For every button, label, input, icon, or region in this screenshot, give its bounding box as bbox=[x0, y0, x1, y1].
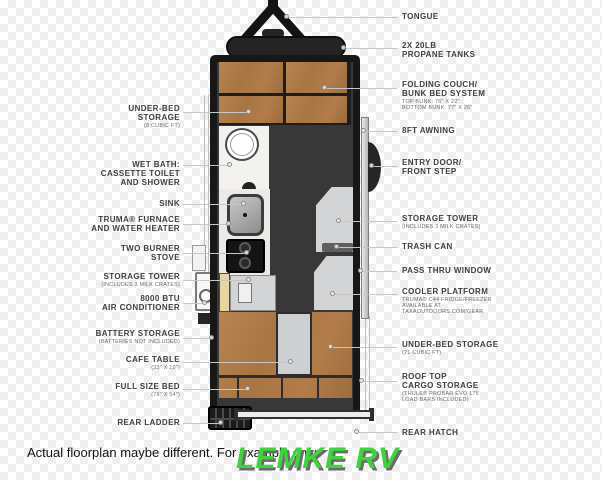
leader-dot bbox=[341, 45, 346, 50]
label-rear-ladder: REAR LADDER bbox=[0, 418, 180, 427]
rear-hatch-bar bbox=[236, 410, 372, 419]
label-storage-tower-right: STORAGE TOWER (INCLUDES 3 MILK CRATES) bbox=[402, 214, 594, 230]
stove-burner bbox=[239, 257, 251, 269]
bed-seam bbox=[281, 378, 283, 398]
leader-dot bbox=[336, 218, 341, 223]
bunk-panel bbox=[219, 96, 283, 123]
bed-seam bbox=[317, 378, 319, 398]
label-awning: 8FT AWNING bbox=[402, 126, 594, 135]
leader-line bbox=[183, 165, 229, 166]
leader-line bbox=[289, 17, 397, 18]
leader-dot bbox=[322, 85, 327, 90]
bunk-panel bbox=[286, 96, 347, 123]
leader-line bbox=[183, 224, 228, 225]
label-entry-door: ENTRY DOOR/ FRONT STEP bbox=[402, 158, 594, 176]
leader-dot bbox=[288, 359, 293, 364]
label-under-bed-storage-front: UNDER-BED STORAGE (8 CUBIC FT) bbox=[0, 104, 180, 129]
label-pass-thru-window: PASS THRU WINDOW bbox=[402, 266, 594, 275]
leader-dot bbox=[226, 221, 231, 226]
bed-seam bbox=[237, 378, 239, 398]
leader-dot bbox=[245, 386, 250, 391]
leader-dot bbox=[284, 14, 289, 19]
floorplan-image: UNDER-BED STORAGE (8 CUBIC FT) WET BATH:… bbox=[0, 0, 602, 480]
leader-dot bbox=[241, 201, 246, 206]
leader-line bbox=[346, 48, 397, 49]
leader-line bbox=[333, 347, 397, 348]
label-propane-tanks: 2X 20LB PROPANE TANKS bbox=[402, 41, 594, 59]
leader-line bbox=[183, 112, 249, 113]
label-trash-can: TRASH CAN bbox=[402, 242, 594, 251]
leader-dot bbox=[202, 300, 207, 305]
leader-line bbox=[183, 338, 210, 339]
leader-dot bbox=[246, 277, 251, 282]
label-sink: SINK bbox=[0, 199, 180, 208]
leader-line bbox=[364, 381, 397, 382]
battery-storage bbox=[219, 273, 230, 312]
leader-line bbox=[339, 247, 397, 248]
leader-line bbox=[374, 166, 397, 167]
leader-line bbox=[341, 221, 397, 222]
leader-dot bbox=[334, 244, 339, 249]
right-trim-rail bbox=[365, 316, 370, 420]
leader-dot bbox=[359, 378, 364, 383]
toilet-bowl bbox=[230, 133, 254, 156]
leader-dot bbox=[330, 291, 335, 296]
label-truma-furnace: TRUMA® FURNACE AND WATER HEATER bbox=[0, 215, 180, 233]
leader-line bbox=[183, 389, 247, 390]
bunk-panel bbox=[219, 62, 283, 93]
leader-line bbox=[327, 88, 397, 89]
leader-line bbox=[183, 253, 246, 254]
dealer-logo: LEMKE RV bbox=[236, 442, 399, 476]
leader-dot bbox=[218, 420, 223, 425]
leader-dot bbox=[227, 162, 232, 167]
label-cooler-platform: COOLER PLATFORM TRUMA® C44 FRIDGE/FREEZE… bbox=[402, 287, 594, 315]
leader-line bbox=[183, 362, 290, 363]
leader-line bbox=[183, 204, 243, 205]
label-folding-couch: FOLDING COUCH/ BUNK BED SYSTEM TOP BUNK:… bbox=[402, 80, 594, 111]
furnace-vent bbox=[192, 245, 206, 271]
leader-line bbox=[335, 294, 397, 295]
label-cafe-table: CAFE TABLE (33" X 19") bbox=[0, 355, 180, 371]
leader-line bbox=[363, 271, 397, 272]
label-rear-hatch: REAR HATCH bbox=[402, 428, 594, 437]
label-wet-bath: WET BATH: CASSETTE TOILET AND SHOWER bbox=[0, 160, 180, 187]
milk-crate bbox=[238, 283, 252, 303]
label-storage-tower-left: STORAGE TOWER (INCLUDES 3 MILK CRATES) bbox=[0, 272, 180, 288]
label-tongue: TONGUE bbox=[402, 12, 594, 21]
leader-line bbox=[359, 432, 397, 433]
leader-line bbox=[366, 131, 397, 132]
label-battery-storage: BATTERY STORAGE (BATTERIES NOT INCLUDED) bbox=[0, 329, 180, 345]
label-air-conditioner: 8000 BTU AIR CONDITIONER bbox=[0, 294, 180, 312]
label-under-bed-storage-rear: UNDER-BED STORAGE (21 CUBIC FT) bbox=[402, 340, 594, 356]
leader-dot bbox=[361, 128, 366, 133]
leader-line bbox=[183, 280, 248, 281]
sink-drain bbox=[243, 213, 247, 217]
label-roof-top-cargo: ROOF TOP CARGO STORAGE (THULE® PROBAR EV… bbox=[402, 372, 594, 403]
leader-dot bbox=[246, 109, 251, 114]
label-two-burner-stove: TWO BURNER STOVE bbox=[0, 244, 180, 262]
folding-couch-bunk-bed bbox=[219, 62, 351, 125]
leader-dot bbox=[209, 335, 214, 340]
leader-dot bbox=[369, 163, 374, 168]
leader-line bbox=[183, 423, 219, 424]
leader-line bbox=[183, 303, 203, 304]
leader-dot bbox=[354, 429, 359, 434]
leader-dot bbox=[358, 268, 363, 273]
leader-dot bbox=[328, 344, 333, 349]
cafe-table bbox=[276, 312, 312, 376]
leader-dot bbox=[244, 250, 249, 255]
label-full-size-bed: FULL SIZE BED (78" X 54") bbox=[0, 382, 180, 398]
